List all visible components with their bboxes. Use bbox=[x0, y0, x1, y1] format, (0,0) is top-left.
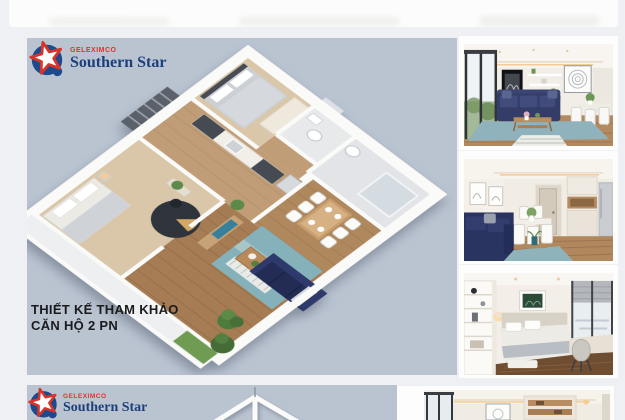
floorplan-image-2pn[interactable]: GELEXIMCO Southern Star THIẾT KẾ THAM KH… bbox=[27, 38, 457, 375]
floorplan-caption: THIẾT KẾ THAM KHẢO CĂN HỘ 2 PN bbox=[31, 302, 179, 334]
caption-line-1: THIẾT KẾ THAM KHẢO bbox=[31, 302, 179, 318]
living-room-photo-1 bbox=[464, 44, 613, 146]
gallery-photo-living-2[interactable] bbox=[459, 151, 618, 264]
caption-line-2: CĂN HỘ 2 PN bbox=[31, 318, 179, 334]
brand-logo-bottom: GELEXIMCO Southern Star bbox=[27, 387, 147, 420]
gallery-photo-living-1[interactable] bbox=[459, 36, 618, 150]
gallery-photo-bedroom[interactable] bbox=[459, 265, 618, 378]
living-room-photo-2 bbox=[464, 159, 613, 261]
brand-project: Southern Star bbox=[70, 55, 166, 70]
gallery-photo-living-4-partial[interactable] bbox=[397, 386, 614, 420]
listing-gallery-screenshot: GELEXIMCO Southern Star THIẾT KẾ THAM KH… bbox=[0, 0, 625, 420]
brand-company: GELEXIMCO bbox=[70, 47, 166, 54]
living-room-photo-4 bbox=[424, 390, 610, 420]
brand-company: GELEXIMCO bbox=[63, 393, 147, 400]
next-floorplan-walls bbox=[197, 385, 317, 420]
previous-image-partial[interactable] bbox=[9, 0, 618, 27]
brand-project: Southern Star bbox=[63, 401, 147, 414]
star-logo-icon bbox=[27, 387, 60, 420]
star-logo-icon bbox=[28, 40, 66, 78]
brand-logo: GELEXIMCO Southern Star bbox=[28, 40, 166, 78]
next-floorplan-image-partial[interactable]: GELEXIMCO Southern Star bbox=[27, 385, 397, 420]
bedroom-photo-3 bbox=[464, 273, 613, 375]
